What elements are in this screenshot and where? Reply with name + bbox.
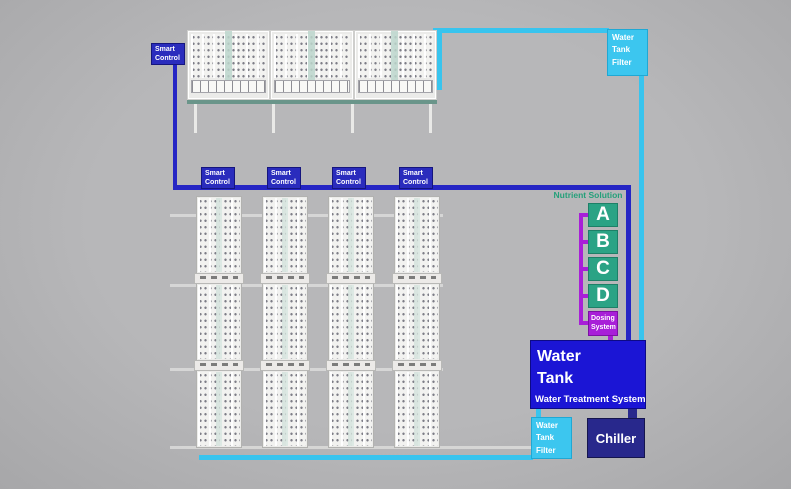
grow-rack-module (187, 30, 270, 100)
vertical-grow-rack (196, 196, 242, 448)
plant-tray-row (274, 80, 349, 93)
chiller-box: Chiller (587, 418, 645, 458)
water-tank-label: Water Tank (531, 341, 645, 389)
rack-leg (351, 99, 354, 133)
rack-section (330, 372, 372, 446)
rack-tray-lid (326, 360, 376, 371)
control-pipe-vertical-right (626, 185, 631, 341)
plant-tray-row (191, 80, 266, 93)
water-tank-filter-bottom: Water Tank Filter (531, 417, 572, 459)
rack-section (264, 285, 306, 359)
control-pipe-vertical-left (173, 60, 177, 188)
rack-tray-lid (392, 273, 442, 284)
nutrient-tank-c: C (588, 257, 618, 281)
nutrient-tank-b: B (588, 230, 618, 254)
smart-control-box-1: Smart Control (201, 167, 235, 189)
rack-tray-lid (194, 360, 244, 371)
rack-tray-lid (392, 360, 442, 371)
horizontal-grow-rack-group (187, 30, 437, 104)
vertical-grow-rack (328, 196, 374, 448)
dosing-system-box: Dosing System (588, 311, 618, 336)
rack-leg (429, 99, 432, 133)
vertical-grow-rack (262, 196, 308, 448)
rack-section (198, 372, 240, 446)
rack-section (264, 198, 306, 272)
rack-leg (272, 99, 275, 133)
rack-section (198, 285, 240, 359)
smart-control-box-3: Smart Control (332, 167, 366, 189)
rack-section (198, 198, 240, 272)
rack-section (396, 285, 438, 359)
rack-tray-lid (194, 273, 244, 284)
plant-tray-grid (358, 34, 433, 78)
rack-leg (194, 99, 197, 133)
nutrient-tank-a: A (588, 203, 618, 227)
plant-tray-grid (274, 34, 349, 78)
nutrient-solution-title: Nutrient Solution (543, 190, 633, 200)
rack-section (396, 198, 438, 272)
smart-control-box-2: Smart Control (267, 167, 301, 189)
grow-rack-module (354, 30, 437, 100)
plant-tray-row (358, 80, 433, 93)
rack-tray-lid (260, 273, 310, 284)
water-pipe-right-drop (639, 74, 644, 341)
rack-section (330, 198, 372, 272)
water-tank-box: Water Tank Water Treatment System (530, 340, 646, 409)
water-tank-filter-top: Water Tank Filter (607, 29, 648, 76)
plant-tray-grid (191, 34, 266, 78)
vertical-farm-water-system-diagram: Smart Control Smart Control Smart Contro… (0, 0, 791, 489)
vertical-grow-rack (394, 196, 440, 448)
rack-section (264, 372, 306, 446)
smart-control-box-top: Smart Control (151, 43, 185, 65)
rack-tray-lid (326, 273, 376, 284)
grow-rack-module (270, 30, 353, 100)
water-treatment-system-label: Water Treatment System (535, 394, 646, 405)
rack-section (396, 372, 438, 446)
water-pipe-bottom (199, 455, 533, 460)
water-pipe-top (433, 28, 609, 33)
rack-section (330, 285, 372, 359)
smart-control-box-4: Smart Control (399, 167, 433, 189)
rack-tray-lid (260, 360, 310, 371)
nutrient-tank-d: D (588, 284, 618, 308)
